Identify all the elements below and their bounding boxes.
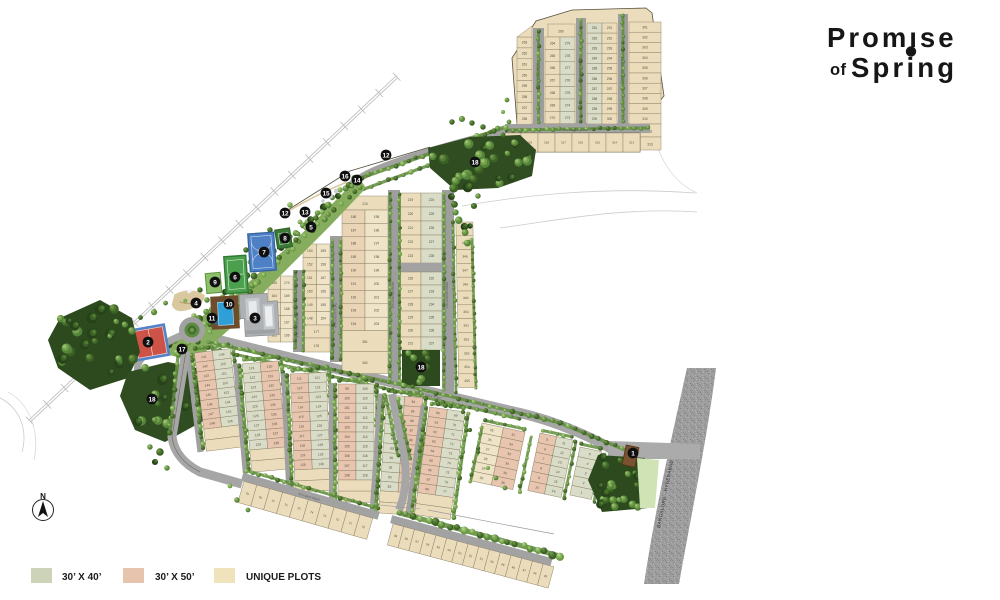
svg-text:104: 104 xyxy=(344,435,350,439)
svg-text:158: 158 xyxy=(320,262,326,266)
svg-text:117: 117 xyxy=(362,464,367,468)
svg-text:2: 2 xyxy=(146,339,150,346)
svg-text:107: 107 xyxy=(344,464,350,468)
svg-text:119: 119 xyxy=(300,453,306,457)
svg-text:200: 200 xyxy=(374,282,380,286)
svg-text:69: 69 xyxy=(454,413,458,417)
svg-text:197: 197 xyxy=(374,242,380,246)
svg-text:125: 125 xyxy=(252,404,258,408)
svg-text:129: 129 xyxy=(255,442,261,446)
svg-text:314: 314 xyxy=(612,141,617,145)
svg-text:274: 274 xyxy=(565,103,571,107)
svg-text:114: 114 xyxy=(298,405,304,409)
svg-text:196: 196 xyxy=(374,228,380,232)
svg-text:313: 313 xyxy=(629,141,634,145)
svg-text:156: 156 xyxy=(320,289,326,293)
svg-text:116: 116 xyxy=(362,454,367,458)
svg-text:256: 256 xyxy=(522,117,528,121)
svg-text:267: 267 xyxy=(550,79,556,83)
svg-text:N: N xyxy=(40,492,46,501)
svg-text:17: 17 xyxy=(178,346,186,353)
svg-text:of: of xyxy=(830,61,846,79)
svg-text:191: 191 xyxy=(351,282,357,286)
svg-text:138: 138 xyxy=(273,441,279,445)
svg-text:199: 199 xyxy=(374,269,380,273)
svg-text:228: 228 xyxy=(429,254,435,258)
svg-text:102: 102 xyxy=(344,416,350,420)
svg-text:4TH CROSS ROAD: 4TH CROSS ROAD xyxy=(563,128,588,132)
svg-text:Promıse: Promıse xyxy=(827,22,957,53)
svg-text:148: 148 xyxy=(209,421,215,426)
svg-text:210: 210 xyxy=(362,202,368,206)
svg-text:195: 195 xyxy=(374,215,380,219)
svg-text:228: 228 xyxy=(408,303,414,307)
svg-text:202: 202 xyxy=(374,309,380,313)
svg-text:305: 305 xyxy=(642,66,648,70)
svg-text:127: 127 xyxy=(317,433,323,437)
svg-text:147: 147 xyxy=(208,412,214,417)
svg-text:264: 264 xyxy=(550,41,556,45)
svg-text:227: 227 xyxy=(429,240,435,244)
svg-text:157: 157 xyxy=(320,276,326,280)
svg-text:192: 192 xyxy=(351,295,357,299)
svg-text:290: 290 xyxy=(592,117,598,121)
svg-text:220: 220 xyxy=(408,212,414,216)
svg-text:281: 281 xyxy=(592,26,598,30)
svg-text:141: 141 xyxy=(201,355,207,360)
svg-text:219: 219 xyxy=(408,198,414,202)
svg-text:297: 297 xyxy=(607,87,613,91)
svg-text:Spring: Spring xyxy=(851,52,957,83)
svg-text:259: 259 xyxy=(522,84,528,88)
svg-text:7: 7 xyxy=(262,249,266,256)
svg-text:190: 190 xyxy=(351,269,357,273)
svg-text:176: 176 xyxy=(314,344,320,348)
svg-text:15: 15 xyxy=(322,190,330,197)
svg-text:113: 113 xyxy=(362,425,367,429)
svg-text:355: 355 xyxy=(464,379,470,383)
svg-text:105: 105 xyxy=(344,445,350,449)
svg-text:93: 93 xyxy=(387,485,391,489)
svg-text:153: 153 xyxy=(223,390,229,395)
svg-text:121: 121 xyxy=(314,376,320,380)
svg-text:94: 94 xyxy=(411,400,415,404)
svg-text:348: 348 xyxy=(463,282,469,286)
svg-text:13: 13 xyxy=(301,209,309,216)
svg-text:353: 353 xyxy=(464,351,470,355)
svg-text:144: 144 xyxy=(204,383,210,388)
svg-text:65: 65 xyxy=(429,458,433,462)
svg-text:258: 258 xyxy=(522,95,528,99)
svg-text:166: 166 xyxy=(284,334,290,338)
svg-text:265: 265 xyxy=(550,54,556,58)
svg-text:164: 164 xyxy=(271,294,277,298)
svg-text:108: 108 xyxy=(344,473,350,477)
svg-text:3RD CROSS ROAD: 3RD CROSS ROAD xyxy=(620,57,624,82)
svg-text:362: 362 xyxy=(362,361,368,365)
svg-text:293: 293 xyxy=(607,47,613,51)
svg-text:225: 225 xyxy=(429,212,435,216)
svg-text:116: 116 xyxy=(299,424,305,428)
svg-text:122: 122 xyxy=(315,385,321,389)
svg-text:285: 285 xyxy=(592,67,598,71)
svg-text:152: 152 xyxy=(222,381,228,386)
svg-text:110: 110 xyxy=(362,397,367,401)
svg-text:128: 128 xyxy=(255,433,261,437)
svg-text:233: 233 xyxy=(429,290,435,294)
svg-text:18: 18 xyxy=(148,396,156,403)
svg-text:146: 146 xyxy=(207,402,213,407)
svg-text:302: 302 xyxy=(642,36,648,40)
svg-text:349: 349 xyxy=(463,296,469,300)
svg-text:127: 127 xyxy=(254,423,260,427)
svg-text:198: 198 xyxy=(374,255,380,259)
svg-text:1: 1 xyxy=(631,450,635,457)
svg-text:8: 8 xyxy=(283,235,287,242)
svg-text:128: 128 xyxy=(317,443,323,447)
svg-text:237: 237 xyxy=(429,342,435,346)
svg-text:71: 71 xyxy=(451,432,455,436)
svg-text:111: 111 xyxy=(297,376,302,380)
svg-text:68: 68 xyxy=(425,487,429,491)
svg-text:142: 142 xyxy=(202,364,208,369)
svg-text:169: 169 xyxy=(284,294,290,298)
svg-text:299: 299 xyxy=(607,107,613,111)
svg-text:1ST CROSS ROAD: 1ST CROSS ROAD xyxy=(536,63,540,88)
svg-text:101: 101 xyxy=(344,406,350,410)
svg-text:131: 131 xyxy=(268,374,274,378)
svg-text:288: 288 xyxy=(592,97,598,101)
svg-text:143: 143 xyxy=(203,374,209,379)
svg-text:137: 137 xyxy=(273,431,279,435)
svg-text:76: 76 xyxy=(444,480,448,484)
svg-text:61: 61 xyxy=(434,420,438,424)
svg-text:3: 3 xyxy=(253,315,257,322)
svg-text:295: 295 xyxy=(607,67,613,71)
svg-text:135: 135 xyxy=(271,412,277,416)
svg-text:123: 123 xyxy=(250,385,256,389)
svg-text:4: 4 xyxy=(194,300,198,307)
svg-text:120: 120 xyxy=(300,463,306,467)
svg-text:121: 121 xyxy=(249,366,255,370)
svg-text:64: 64 xyxy=(430,449,434,453)
svg-text:226: 226 xyxy=(408,277,414,281)
svg-text:266: 266 xyxy=(550,66,556,70)
svg-text:155: 155 xyxy=(320,303,326,307)
svg-text:308: 308 xyxy=(642,97,648,101)
svg-text:263: 263 xyxy=(522,41,528,45)
svg-text:222: 222 xyxy=(408,240,414,244)
svg-text:188: 188 xyxy=(351,242,357,246)
svg-text:224: 224 xyxy=(429,198,435,202)
svg-text:148: 148 xyxy=(307,316,313,320)
svg-text:74: 74 xyxy=(447,461,451,465)
svg-text:12: 12 xyxy=(382,152,390,159)
svg-text:5: 5 xyxy=(309,224,313,231)
svg-text:11: 11 xyxy=(209,315,216,322)
svg-text:111: 111 xyxy=(362,406,367,410)
svg-text:62: 62 xyxy=(433,430,437,434)
svg-text:313: 313 xyxy=(647,143,653,147)
svg-text:30’ X 50’: 30’ X 50’ xyxy=(155,572,195,583)
svg-text:315: 315 xyxy=(595,141,600,145)
svg-text:149: 149 xyxy=(219,352,225,357)
svg-text:189: 189 xyxy=(351,255,357,259)
svg-text:118: 118 xyxy=(300,444,306,448)
svg-text:60: 60 xyxy=(436,411,440,415)
svg-text:177: 177 xyxy=(314,330,320,334)
svg-text:300: 300 xyxy=(607,117,613,121)
svg-text:294: 294 xyxy=(607,57,613,61)
svg-text:280: 280 xyxy=(558,30,564,34)
svg-text:18: 18 xyxy=(471,159,479,166)
svg-text:361: 361 xyxy=(362,340,368,344)
svg-text:303: 303 xyxy=(642,46,648,50)
svg-text:257: 257 xyxy=(522,106,528,110)
svg-text:317: 317 xyxy=(561,141,566,145)
svg-text:150: 150 xyxy=(307,289,313,293)
svg-text:16: 16 xyxy=(341,173,349,180)
svg-text:UNIQUE PLOTS: UNIQUE PLOTS xyxy=(246,572,321,583)
svg-text:153: 153 xyxy=(307,249,313,253)
svg-text:70: 70 xyxy=(452,423,456,427)
svg-text:201: 201 xyxy=(374,295,380,299)
svg-text:167: 167 xyxy=(284,320,290,324)
svg-text:193: 193 xyxy=(351,309,357,313)
svg-text:350: 350 xyxy=(463,310,469,314)
svg-text:352: 352 xyxy=(464,338,470,342)
svg-text:89: 89 xyxy=(390,446,394,450)
svg-text:97: 97 xyxy=(409,428,413,432)
svg-text:67: 67 xyxy=(426,477,430,481)
svg-text:149: 149 xyxy=(307,303,313,307)
svg-text:304: 304 xyxy=(642,56,648,60)
svg-text:145: 145 xyxy=(206,393,212,398)
svg-text:261: 261 xyxy=(522,63,528,67)
svg-text:10: 10 xyxy=(225,301,233,308)
svg-text:136: 136 xyxy=(272,422,278,426)
svg-text:109: 109 xyxy=(362,387,368,391)
svg-text:268: 268 xyxy=(550,91,556,95)
svg-text:99: 99 xyxy=(345,387,349,391)
svg-text:156: 156 xyxy=(227,419,233,424)
svg-text:134: 134 xyxy=(270,403,276,407)
svg-text:298: 298 xyxy=(607,97,613,101)
svg-text:346: 346 xyxy=(462,255,468,259)
svg-text:289: 289 xyxy=(592,107,598,111)
svg-text:123: 123 xyxy=(315,395,321,399)
svg-text:306: 306 xyxy=(642,76,648,80)
svg-text:307: 307 xyxy=(642,87,648,91)
svg-text:286: 286 xyxy=(592,77,598,81)
svg-text:283: 283 xyxy=(592,47,598,51)
svg-text:130: 130 xyxy=(318,462,324,466)
svg-text:98: 98 xyxy=(409,438,413,442)
svg-text:77: 77 xyxy=(443,489,447,493)
svg-text:12: 12 xyxy=(281,210,289,217)
svg-text:273: 273 xyxy=(565,116,571,120)
svg-text:126: 126 xyxy=(317,424,323,428)
svg-text:223: 223 xyxy=(408,254,414,258)
svg-text:310: 310 xyxy=(642,117,648,121)
svg-text:260: 260 xyxy=(522,73,528,77)
svg-text:270: 270 xyxy=(550,116,556,120)
svg-text:229: 229 xyxy=(408,316,414,320)
svg-text:115: 115 xyxy=(362,445,367,449)
svg-text:278: 278 xyxy=(565,54,571,58)
svg-text:203: 203 xyxy=(374,322,380,326)
svg-text:124: 124 xyxy=(316,404,322,408)
svg-text:292: 292 xyxy=(607,36,613,40)
svg-text:284: 284 xyxy=(592,57,598,61)
svg-text:126: 126 xyxy=(253,414,259,418)
svg-text:66: 66 xyxy=(428,468,432,472)
svg-text:118: 118 xyxy=(362,473,367,477)
svg-text:232: 232 xyxy=(429,277,435,281)
svg-text:75: 75 xyxy=(446,470,450,474)
svg-text:291: 291 xyxy=(607,26,613,30)
svg-text:354: 354 xyxy=(464,365,470,369)
svg-text:151: 151 xyxy=(307,276,313,280)
svg-text:287: 287 xyxy=(592,87,598,91)
svg-text:309: 309 xyxy=(642,107,648,111)
svg-text:234: 234 xyxy=(429,303,435,307)
svg-text:168: 168 xyxy=(284,307,290,311)
svg-text:92: 92 xyxy=(388,475,392,479)
svg-text:114: 114 xyxy=(362,435,367,439)
svg-text:124: 124 xyxy=(251,395,257,399)
svg-text:275: 275 xyxy=(565,91,571,95)
svg-text:221: 221 xyxy=(408,226,414,230)
svg-text:18: 18 xyxy=(417,364,425,371)
svg-text:129: 129 xyxy=(318,452,324,456)
svg-text:159: 159 xyxy=(320,249,326,253)
svg-text:113: 113 xyxy=(297,396,303,400)
svg-text:115: 115 xyxy=(298,415,304,419)
svg-text:230: 230 xyxy=(408,329,414,333)
svg-text:282: 282 xyxy=(592,36,598,40)
svg-text:2ND CROSS ROAD: 2ND CROSS ROAD xyxy=(578,57,582,82)
svg-text:347: 347 xyxy=(462,269,468,273)
svg-text:152: 152 xyxy=(307,262,313,266)
svg-text:103: 103 xyxy=(344,425,350,429)
svg-text:11TH CROSS ROAD: 11TH CROSS ROAD xyxy=(445,282,449,308)
svg-text:14: 14 xyxy=(353,177,361,184)
svg-text:8TH CROSS ROAD: 8TH CROSS ROAD xyxy=(296,313,300,338)
svg-text:132: 132 xyxy=(268,383,274,387)
svg-text:296: 296 xyxy=(607,77,613,81)
svg-text:6: 6 xyxy=(233,274,237,281)
svg-text:262: 262 xyxy=(522,52,528,56)
svg-text:187: 187 xyxy=(351,228,357,232)
svg-text:63: 63 xyxy=(432,439,436,443)
svg-text:72: 72 xyxy=(450,442,454,446)
svg-text:90: 90 xyxy=(389,456,393,460)
svg-text:194: 194 xyxy=(351,322,357,326)
svg-text:122: 122 xyxy=(250,376,256,380)
svg-text:351: 351 xyxy=(463,324,469,328)
svg-text:95: 95 xyxy=(411,409,415,413)
svg-text:130: 130 xyxy=(267,364,273,368)
svg-text:133: 133 xyxy=(269,393,275,397)
svg-text:235: 235 xyxy=(429,316,435,320)
svg-text:10TH CROSS ROAD: 10TH CROSS ROAD xyxy=(391,282,395,308)
svg-text:316: 316 xyxy=(578,141,583,145)
svg-text:9TH CROSS ROAD: 9TH CROSS ROAD xyxy=(334,303,338,328)
svg-text:276: 276 xyxy=(565,79,571,83)
svg-text:236: 236 xyxy=(429,329,435,333)
svg-text:155: 155 xyxy=(226,409,232,414)
svg-text:30’ X 40’: 30’ X 40’ xyxy=(62,572,102,583)
svg-text:279: 279 xyxy=(565,41,571,45)
svg-text:112: 112 xyxy=(362,416,367,420)
svg-text:151: 151 xyxy=(221,371,227,376)
svg-text:73: 73 xyxy=(448,451,452,455)
svg-text:100: 100 xyxy=(344,397,350,401)
svg-text:9: 9 xyxy=(213,279,217,286)
svg-text:117: 117 xyxy=(299,434,305,438)
svg-text:226: 226 xyxy=(429,226,435,230)
svg-text:318: 318 xyxy=(544,141,549,145)
svg-text:170: 170 xyxy=(284,281,290,285)
svg-text:96: 96 xyxy=(410,419,414,423)
svg-text:154: 154 xyxy=(225,400,231,405)
svg-text:301: 301 xyxy=(642,25,648,29)
svg-text:186: 186 xyxy=(351,215,357,219)
svg-text:106: 106 xyxy=(344,454,350,458)
svg-text:231: 231 xyxy=(408,342,414,346)
svg-text:125: 125 xyxy=(316,414,322,418)
svg-text:227: 227 xyxy=(408,290,414,294)
svg-text:112: 112 xyxy=(297,386,303,390)
svg-text:277: 277 xyxy=(565,66,571,70)
svg-text:91: 91 xyxy=(389,466,393,470)
svg-text:269: 269 xyxy=(550,103,556,107)
svg-text:154: 154 xyxy=(320,316,326,320)
svg-text:150: 150 xyxy=(220,362,226,367)
